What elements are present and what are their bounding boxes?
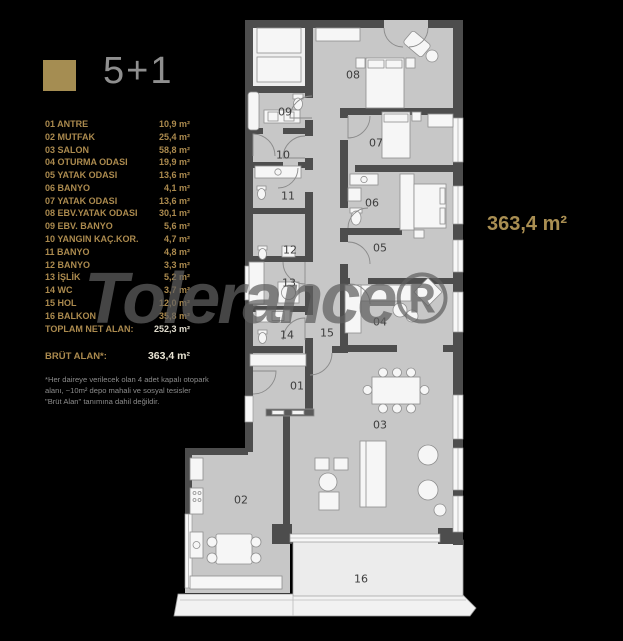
page: { "header": { "title": "5+1" }, "colors"… [0,0,623,641]
floor-plan [0,0,623,641]
floor-plan-svg [0,0,623,641]
